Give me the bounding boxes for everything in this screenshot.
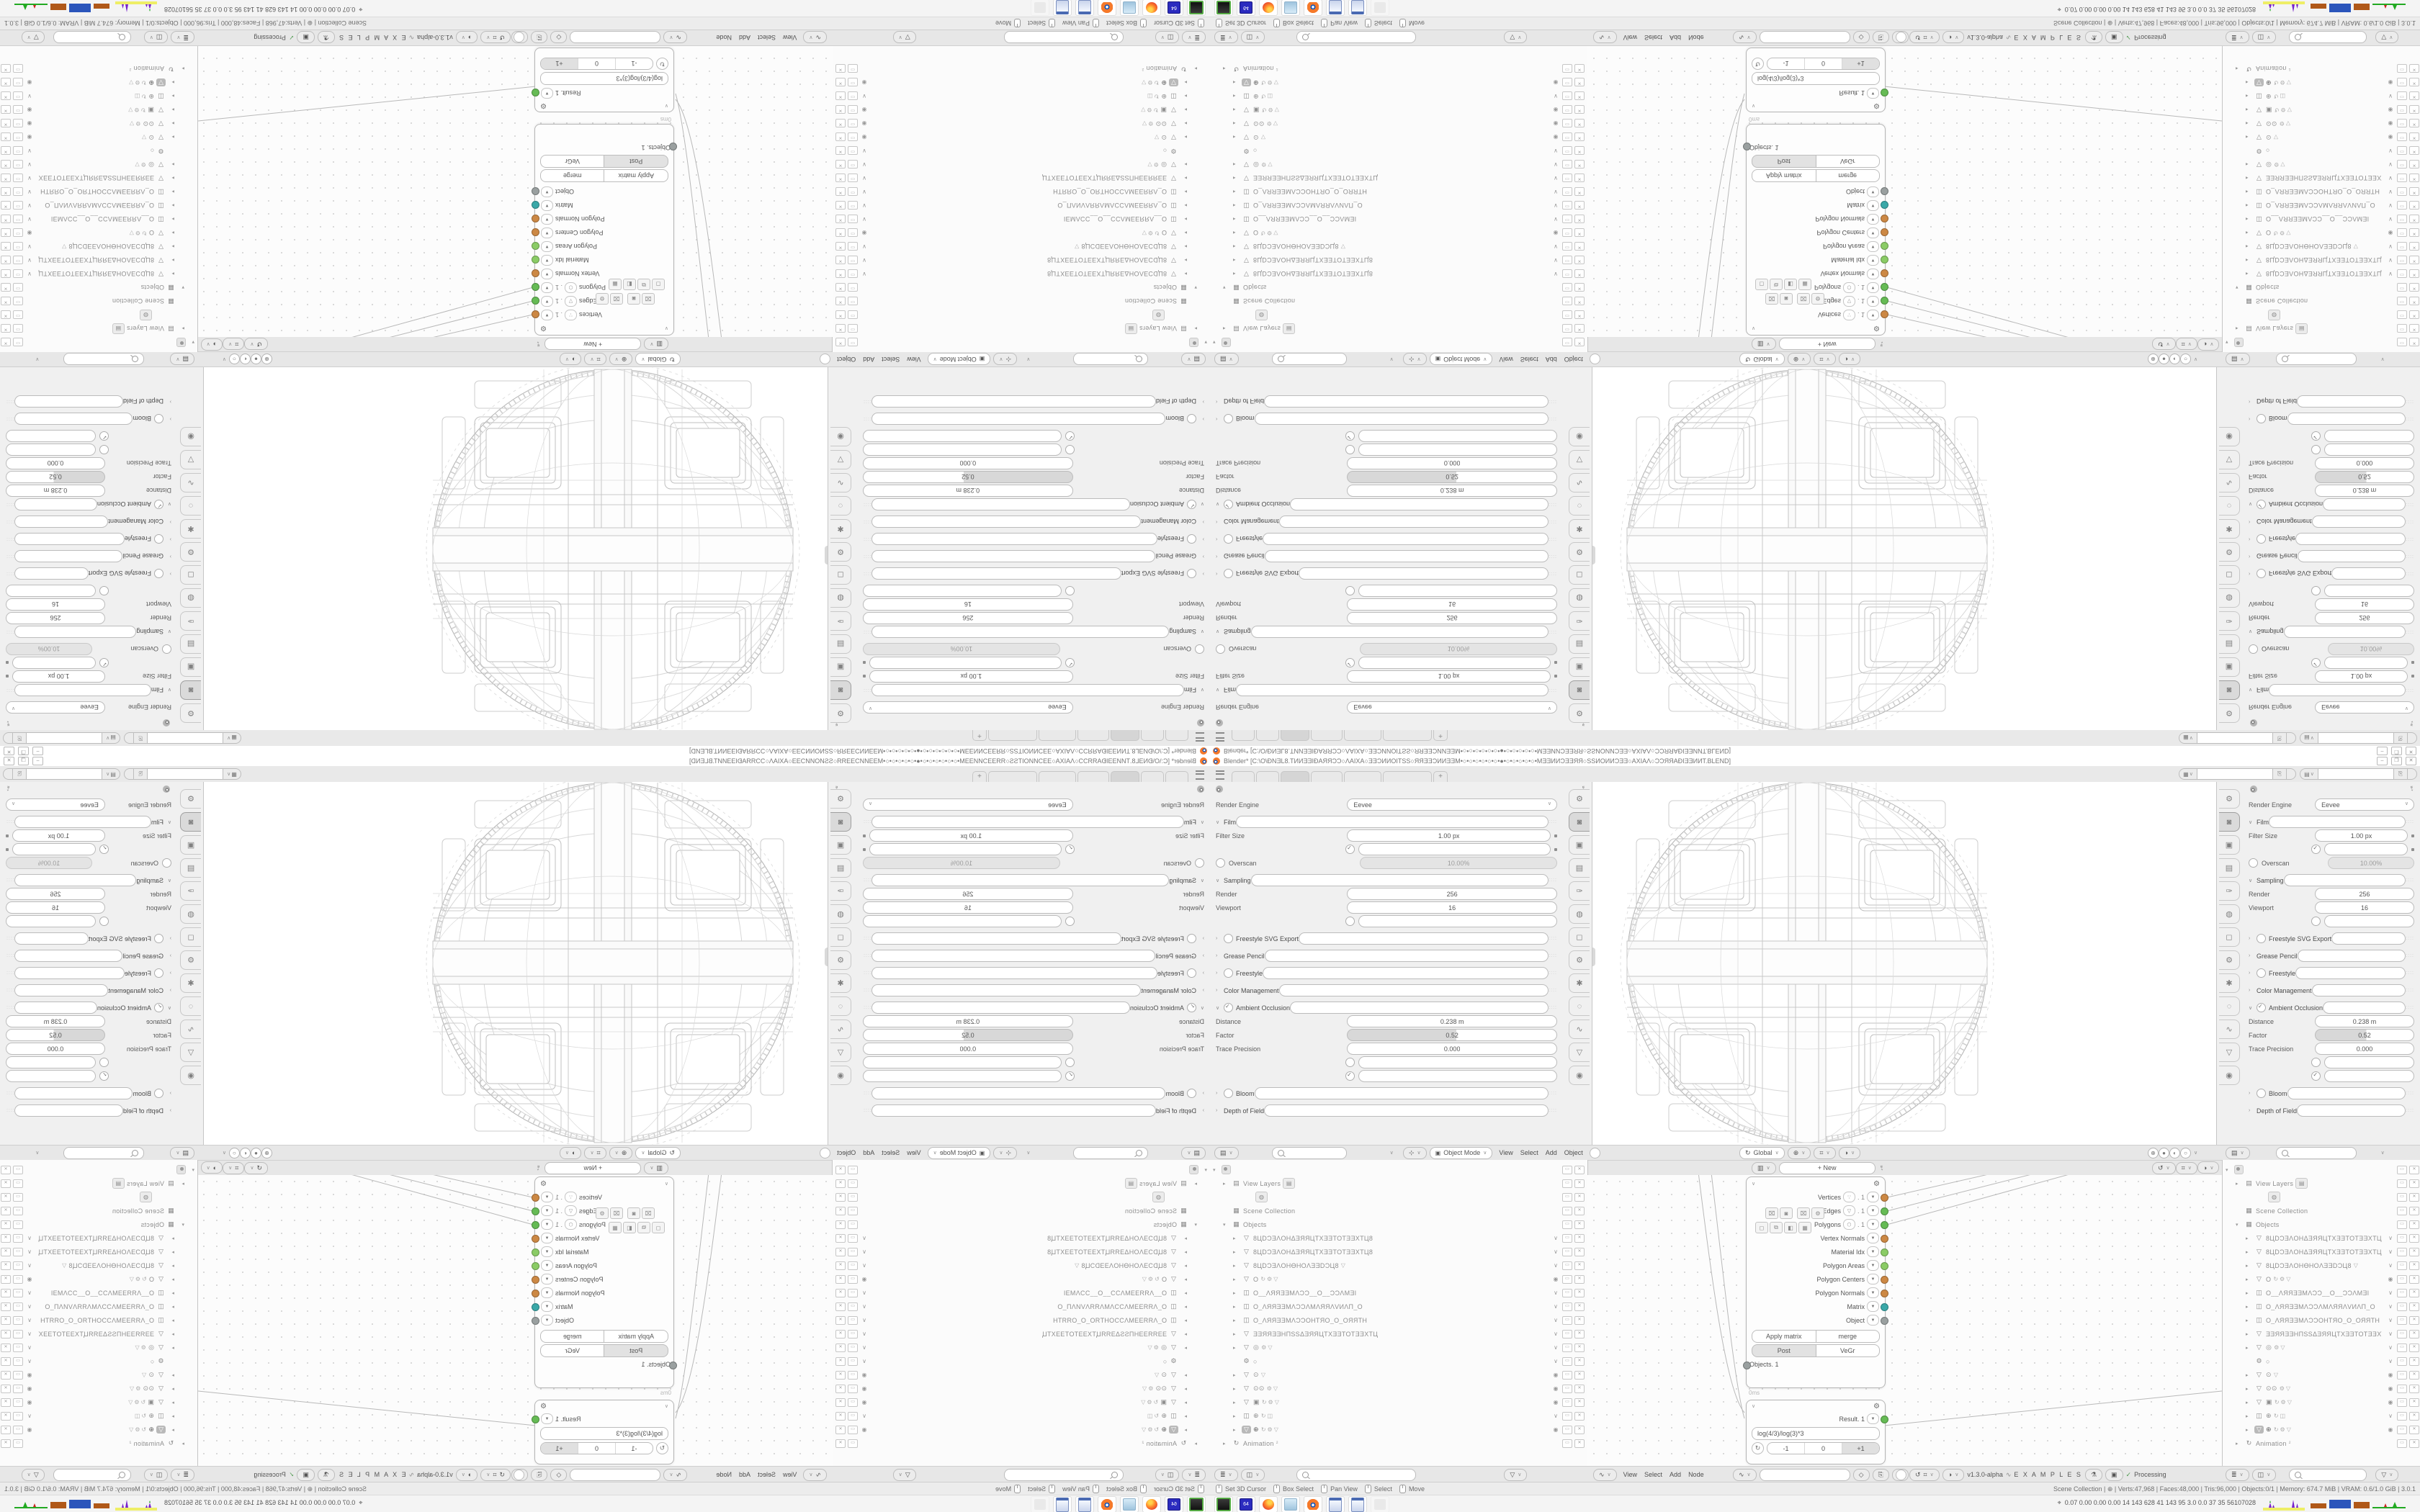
object-name[interactable]: 8ЦDƆƎΛOHƟHOΛƎƎDƆЦ8 <box>2266 243 2352 251</box>
copy-button[interactable]: ⎘ <box>1873 32 1889 44</box>
viewport-visibility-icon[interactable]: ▭ <box>848 1289 858 1297</box>
value-field[interactable]: 256 <box>1347 888 1557 900</box>
render-visibility-icon[interactable]: ✕ <box>1574 1166 1585 1174</box>
object-name[interactable]: Animation <box>1243 66 1274 73</box>
value-field[interactable] <box>871 950 1156 962</box>
viewport-visibility-icon[interactable]: ▭ <box>13 1344 23 1352</box>
properties-row[interactable]: ∨ Sampling Sampling :::: <box>2249 625 2414 639</box>
properties-row[interactable]: Bounces Approximation Bounces Approximat… <box>6 429 171 443</box>
render-visibility-icon[interactable]: ✕ <box>1 1193 11 1202</box>
outliner-display-mode-button[interactable]: ≣∨ <box>1214 32 1238 44</box>
tree-name-field[interactable] <box>1760 32 1850 44</box>
render-visibility-icon[interactable]: ✕ <box>2409 297 2419 306</box>
properties-tab-icon[interactable]: ◻ <box>2219 565 2240 585</box>
drag-dots[interactable]: :::: <box>6 399 14 404</box>
toggle-checkbox[interactable] <box>162 858 171 868</box>
workspace-tab[interactable] <box>988 771 1037 782</box>
toggle-checkbox[interactable] <box>154 569 163 578</box>
properties-row[interactable]: Trace Precision Trace Precision 0.000 ::… <box>6 456 171 470</box>
outliner-row[interactable]: ◍ ▭ ✕ <box>0 1190 194 1204</box>
stepper-button[interactable]: 0 <box>578 1443 616 1454</box>
properties-tab-icon[interactable]: ✱ <box>1569 519 1590 539</box>
socket-dot[interactable] <box>1881 1290 1888 1297</box>
visibility-icon[interactable]: ∨ <box>2386 1413 2395 1419</box>
section-chevron-icon[interactable]: ∨ <box>1196 629 1204 635</box>
outliner-row[interactable]: ▸ ▽ 8ЦDƆƎΛOHΔƎЯЯЦTXƎƎTOTƎƎXTЦ8 ∨ ▭ ✕ <box>0 253 194 267</box>
outliner-row[interactable]: ▸ ▤ View Layers ▤ ▭ ✕ <box>834 1176 1207 1190</box>
socket-dropdown[interactable]: ▼ <box>1867 228 1879 238</box>
object-name[interactable]: O_ΛЯЯƎƎMΛƆƆΛMΛЯЯΛVИΛП_O <box>2266 202 2375 210</box>
viewport-visibility-icon[interactable]: ▭ <box>1562 229 1572 238</box>
outliner-row[interactable]: ▸ ▽ 8ЦDƆƎΛOHΔƎЯЯЦTXƎƎTOTƎƎXTЦ8 ∨ ▭ ✕ <box>834 1231 1207 1245</box>
viewport-visibility-icon[interactable]: ▭ <box>13 174 23 183</box>
properties-row[interactable]: Transparent Transparent :::: <box>2249 842 2414 856</box>
visibility-icon[interactable]: ◉ <box>860 230 869 236</box>
expand-icon[interactable]: ▾ <box>2236 285 2242 291</box>
viewlayer-name-field[interactable] <box>26 768 102 780</box>
viewport-extra-button[interactable] <box>820 354 830 365</box>
visibility-icon[interactable]: ◉ <box>1551 79 1560 86</box>
outliner-display-mode-button[interactable]: ≣∨ <box>2226 1469 2249 1481</box>
outliner-row[interactable]: ▸ ▽ 8ЦDƆƎΛOHƟHOΛƎƎDƆЦ8 ▽ ∨ ▭ ✕ <box>1213 1259 1586 1272</box>
drag-dots[interactable]: :::: <box>863 971 871 976</box>
value-field[interactable]: 0.000 <box>863 457 1073 469</box>
stepper-button[interactable]: +1 <box>541 1443 578 1454</box>
object-name[interactable]: ◎ <box>1161 161 1167 168</box>
render-visibility-icon[interactable]: ✕ <box>1 243 11 251</box>
viewport-visibility-icon[interactable]: ▭ <box>2397 92 2407 101</box>
viewport-visibility-icon[interactable]: ▭ <box>2397 1193 2407 1202</box>
expand-icon[interactable]: ▸ <box>1180 1249 1187 1255</box>
object-name[interactable]: Objects <box>1243 284 1267 292</box>
value-field[interactable]: 1.00 px <box>2315 670 2408 683</box>
section-chevron-icon[interactable]: › <box>1196 416 1204 421</box>
value-field[interactable]: 10.00% <box>6 643 92 655</box>
node-tool-button[interactable]: ⚙ <box>1811 293 1824 305</box>
proportional-dropdown[interactable]: ◑∨ <box>1839 354 1861 366</box>
value-field[interactable]: 0.238 m <box>6 1015 105 1027</box>
value-field[interactable] <box>1236 684 1549 696</box>
node-editor-canvas[interactable]: ∨⚙ Vertices ∵ . 1 ▼ Edges ▽ . 1 ▼ Polygo… <box>1587 1175 2222 1466</box>
value-field[interactable] <box>14 984 109 996</box>
viewport-visibility-icon[interactable]: ▭ <box>2397 1412 2407 1421</box>
object-name[interactable]: O_ΛЯЯƎƎMΛƆƆΛMΛЯЯΛVИΛП_O <box>1253 202 1363 210</box>
viewport-visibility-icon[interactable]: ▭ <box>2397 1385 2407 1393</box>
viewport-visibility-icon[interactable]: ▭ <box>1562 1193 1572 1202</box>
stepper-button[interactable]: +1 <box>541 58 578 69</box>
object-name[interactable]: Scene Collection <box>1243 1207 1295 1215</box>
drag-dots[interactable]: :::: <box>863 953 871 958</box>
object-name[interactable]: ⊕ <box>148 78 154 86</box>
outliner-funnel-button[interactable]: ▽∨ <box>2375 1469 2398 1481</box>
toggle-checkbox[interactable] <box>2311 845 2321 854</box>
socket-chip-icon[interactable]: ⬡ <box>1843 282 1855 293</box>
object-name[interactable]: O__ΛЯЯƎƎMΛƆƆ__O__ƆƆΛMƎI <box>1253 216 1356 223</box>
properties-row[interactable]: › Color Management Color Management Colo… <box>863 515 1204 528</box>
viewport-visibility-icon[interactable]: ▭ <box>1562 1398 1572 1407</box>
visibility-icon[interactable]: ◉ <box>860 107 869 113</box>
drag-dots[interactable]: :::: <box>863 1108 871 1113</box>
drag-dots[interactable]: :::: <box>863 988 871 993</box>
viewport-visibility-icon[interactable]: ▭ <box>1562 174 1572 183</box>
render-visibility-icon[interactable]: ✕ <box>835 284 846 292</box>
viewport-visibility-icon[interactable]: ▭ <box>848 1302 858 1311</box>
properties-row[interactable]: › Freestyle SVG Export Freestyle SVG Exp… <box>1216 932 1557 945</box>
drag-dots[interactable]: :::: <box>863 819 871 824</box>
expand-icon[interactable]: ▸ <box>1180 1236 1187 1241</box>
visibility-icon[interactable]: ◉ <box>860 1385 869 1392</box>
expand-icon[interactable]: ▸ <box>1180 135 1187 140</box>
expand-icon[interactable]: ▸ <box>1223 1441 1229 1446</box>
properties-row[interactable]: Filter Size Filter Size 1.00 px :::: <box>2249 670 2414 683</box>
stepper-button[interactable]: -1 <box>1767 1443 1804 1454</box>
socket-dropdown[interactable]: ▼ <box>1867 310 1879 320</box>
viewport-visibility-icon[interactable]: ▭ <box>13 65 23 73</box>
properties-row[interactable]: › Color Management Color Management :::: <box>6 984 171 997</box>
render-visibility-icon[interactable]: ✕ <box>2409 1234 2419 1243</box>
node-output-socket-row[interactable]: Polygon Centers ▼ <box>1747 1272 1885 1286</box>
object-name[interactable]: Animation <box>133 66 164 73</box>
object-name[interactable]: 8ЦDƆƎΛOHΔƎЯЯЦTXƎƎTOTƎƎXTЦ8 <box>1047 1235 1167 1242</box>
taskbar-app-button[interactable] <box>1304 1496 1322 1512</box>
outliner-row[interactable]: ▸ ▽ ▣ ↻⚙▽ ◉ ▭ ✕ <box>2226 1395 2420 1409</box>
stepper-button[interactable]: 0 <box>1804 1443 1842 1454</box>
value-field[interactable] <box>1358 585 1557 597</box>
properties-row[interactable]: Factor Factor 0.52 Factor :::: <box>863 1028 1204 1042</box>
object-name[interactable]: 8ЦDƆƎΛOHƟHOΛƎƎDƆЦ8 <box>68 243 154 251</box>
render-visibility-icon[interactable]: ✕ <box>1 1330 11 1338</box>
viewlayer-selector[interactable]: ▤∨ ⎘ <box>3 732 120 744</box>
render-visibility-icon[interactable]: ✕ <box>1 188 11 197</box>
expand-icon[interactable]: ▸ <box>1180 1290 1187 1296</box>
render-visibility-icon[interactable]: ✕ <box>1 106 11 114</box>
render-visibility-icon[interactable]: ✕ <box>1574 1193 1585 1202</box>
new-node-tree-button[interactable]: + New <box>544 338 641 351</box>
input-socket-dot[interactable] <box>669 143 677 150</box>
toggle-checkbox[interactable] <box>2257 934 2266 943</box>
socket-dropdown[interactable]: ▼ <box>541 1219 553 1230</box>
socket-dot[interactable] <box>1881 1221 1888 1229</box>
object-name[interactable]: O_ΛЯЯƎƎMΛƆƆOHTЯO_O_OЯЯTH <box>2266 189 2380 196</box>
formula-input[interactable]: log(4/3)/log(3)*3 <box>1752 1427 1880 1440</box>
viewport-visibility-icon[interactable]: ▭ <box>1562 311 1572 320</box>
outliner-row[interactable]: ▸ ▽ ⊙ ▽ ◉ ▭ ✕ <box>2226 130 2420 144</box>
viewlayer-selector[interactable]: ▤∨ ⎘ <box>2300 732 2417 744</box>
properties-row[interactable]: › Color Management Color Management :::: <box>2249 984 2414 997</box>
render-visibility-icon[interactable]: ✕ <box>1574 256 1585 265</box>
viewport-visibility-icon[interactable]: ▭ <box>1562 325 1572 333</box>
render-visibility-icon[interactable]: ✕ <box>835 202 846 210</box>
object-name[interactable]: ƎƎЯЯƎƎHПSSΔƎЯЯЦTXƎƎTOTƎƎXTЦ <box>1253 175 1378 182</box>
object-name[interactable]: ⊙⊙ <box>1253 120 1265 127</box>
socket-dropdown[interactable]: ▼ <box>541 1260 553 1271</box>
viewport-visibility-icon[interactable]: ▭ <box>13 78 23 87</box>
socket-dot[interactable] <box>532 1262 539 1270</box>
node-tool-button[interactable]: ⧉ <box>1770 1222 1783 1233</box>
expand-icon[interactable]: ▸ <box>1233 203 1240 209</box>
object-name[interactable]: O__ΛЯЯƎƎMΛƆƆ__O__ƆƆΛMƎI <box>51 216 154 223</box>
outliner-row[interactable]: ▸ ▽ O ↻⚙▽ ◉ ▭ ✕ <box>834 1272 1207 1286</box>
viewport-visibility-icon[interactable]: ▭ <box>848 270 858 279</box>
expand-icon[interactable]: ▸ <box>1191 66 1197 72</box>
render-visibility-icon[interactable]: ✕ <box>835 188 846 197</box>
node-output-socket-row[interactable]: Polygon Normals ▼ <box>535 212 673 226</box>
drag-dots[interactable]: :::: <box>2406 399 2414 404</box>
object-name[interactable]: 8ЦDƆƎΛOHΔƎЯЯЦTXƎƎTOTƎƎXTЦ8 <box>38 1235 154 1242</box>
stepper-button[interactable]: -1 <box>616 58 653 69</box>
render-visibility-icon[interactable]: ✕ <box>835 1302 846 1311</box>
outliner-row[interactable]: ▸ ↻ Animation ² ▭ ✕ <box>2226 62 2420 76</box>
drag-dots[interactable]: :::: <box>863 1005 871 1010</box>
properties-row[interactable]: Render Engine Render Engine Eevee :::: <box>2249 701 2414 714</box>
outliner-row[interactable]: ▸ ▽ ▣ ↻⚙▽ ◉ ▭ ✕ <box>2226 103 2420 117</box>
transform-gizmo-button[interactable]: ⊹∨ <box>1403 354 1427 366</box>
toggle-checkbox[interactable] <box>1065 845 1075 854</box>
close-button[interactable]: ✕ <box>4 747 14 755</box>
node-tool-button[interactable]: ◻ <box>1755 279 1768 290</box>
taskbar-app-button[interactable] <box>1259 1496 1278 1512</box>
properties-tab-icon[interactable]: ∿ <box>180 1020 201 1039</box>
viewport-visibility-icon[interactable]: ▭ <box>2397 311 2407 320</box>
outliner-row[interactable]: ⚙ ○ ∨ ▭ ✕ <box>0 1354 194 1368</box>
socket-dropdown[interactable]: ▼ <box>541 296 553 307</box>
properties-row[interactable]: Filter Size Filter Size 1.00 px Filter S… <box>863 829 1204 842</box>
object-name[interactable]: 8ЦDƆƎΛOHΔƎЯЯЦTXƎƎTOTƎƎXTЦ8 <box>38 1248 154 1256</box>
properties-tab-icon[interactable]: ◙ <box>830 680 851 700</box>
expand-icon[interactable]: ▸ <box>1233 1372 1240 1378</box>
properties-row[interactable]: Bent Normals Bent Normals Bent Normals :… <box>863 1056 1204 1069</box>
properties-row[interactable]: Overscan Overscan 10.00% Overscan :::: <box>1216 642 1557 656</box>
properties-row[interactable]: › Freestyle Freestyle Freestyle :::: <box>863 966 1204 980</box>
viewport-visibility-icon[interactable]: ▭ <box>1562 202 1572 210</box>
socket-dot[interactable] <box>532 1194 539 1202</box>
expand-icon[interactable]: ▸ <box>168 80 174 86</box>
node-menu-item[interactable]: Add <box>739 34 750 41</box>
viewport-visibility-icon[interactable]: ▭ <box>2397 1357 2407 1366</box>
socket-dot[interactable] <box>1881 201 1888 209</box>
drag-dots[interactable]: :::: <box>2406 936 2414 941</box>
orientation-dropdown[interactable]: ↻Global∨ <box>635 354 681 366</box>
minimize-button[interactable]: – <box>32 747 43 755</box>
outliner-row[interactable]: ▸ ▽ ⊕ ↻⚙▽ ◉ ▭ ✕ <box>834 76 1207 89</box>
value-field[interactable] <box>1290 498 1549 510</box>
outliner-filter-dropdown[interactable]: ∨ <box>1390 1150 1394 1156</box>
viewport-menu-item[interactable]: View <box>1499 1149 1512 1156</box>
value-field[interactable] <box>2324 430 2414 442</box>
properties-row[interactable]: › Freestyle Freestyle :::: <box>6 966 171 980</box>
visibility-icon[interactable]: ∨ <box>2386 257 2395 264</box>
value-field[interactable]: 0.000 <box>2315 457 2414 469</box>
outliner-row[interactable]: ▸ ▽ 8ЦDƆƎΛOHΔƎЯЯЦTXƎƎTOTƎƎXTЦ8 ∨ ▭ ✕ <box>2226 1245 2420 1259</box>
value-field[interactable] <box>2295 533 2406 545</box>
viewport-visibility-icon[interactable]: ▭ <box>13 243 23 251</box>
render-visibility-icon[interactable]: ✕ <box>1 1207 11 1215</box>
render-visibility-icon[interactable]: ✕ <box>2409 1439 2419 1448</box>
expand-icon[interactable]: ▸ <box>2246 176 2252 181</box>
viewport-visibility-icon[interactable]: ▭ <box>13 1179 23 1188</box>
expand-icon[interactable]: ▸ <box>2236 1441 2242 1446</box>
node-tool-button[interactable]: ◧ <box>1784 1222 1797 1233</box>
outliner-row[interactable]: ▸ ◫ O_ΛЯЯƎƎMΛƆƆOHTЯO_O_OЯЯTH ∨ ▭ ✕ <box>1213 1313 1586 1327</box>
refresh-icon[interactable]: ↻ <box>656 1442 668 1454</box>
properties-tab-icon[interactable]: ▤ <box>2219 858 2240 878</box>
outliner-row[interactable]: ▸ ◫ O_ΛЯЯƎƎMΛƆƆΛMΛЯЯΛVИΛП_O ∨ ▭ ✕ <box>1213 1300 1586 1313</box>
properties-tab-icon[interactable]: ▽ <box>2219 450 2240 469</box>
toggle-checkbox[interactable] <box>1187 1003 1196 1012</box>
render-visibility-icon[interactable]: ✕ <box>835 311 846 320</box>
shading-mode-button[interactable]: ○ <box>229 1148 240 1158</box>
properties-row[interactable]: Render Engine Render Engine Eevee Render… <box>1216 798 1557 811</box>
toggle-checkbox[interactable] <box>1345 658 1355 667</box>
workspace-tab[interactable] <box>1344 730 1381 741</box>
examples-menu[interactable]: E X A M P L E S <box>2014 1471 2082 1478</box>
viewport-visibility-icon[interactable]: ▭ <box>848 147 858 156</box>
section-chevron-icon[interactable]: ∨ <box>2249 819 2257 825</box>
outliner-row[interactable]: ⚙ ○ ∨ ▭ ✕ <box>834 1354 1207 1368</box>
node-layout-icon[interactable]: ⚙ <box>540 1180 547 1188</box>
object-name[interactable]: O__ΛЯЯƎƎMΛƆƆ__O__ƆƆΛMƎI <box>51 1290 154 1297</box>
node-output-socket-row[interactable]: Vertices ∵ . 1 ▼ <box>535 1190 673 1204</box>
viewport-visibility-icon[interactable]: ▭ <box>2397 1330 2407 1338</box>
render-visibility-icon[interactable]: ✕ <box>835 297 846 306</box>
render-visibility-icon[interactable]: ✕ <box>1 161 11 169</box>
object-name[interactable]: Objects <box>1153 284 1177 292</box>
properties-row[interactable]: Distance Distance 0.238 m Distance :::: <box>1216 1014 1557 1028</box>
monitor-button[interactable]: ▣ <box>297 1469 315 1481</box>
value-field[interactable]: 0.52 <box>2315 471 2414 483</box>
shading-mode-button[interactable]: ● <box>251 354 261 365</box>
expand-icon[interactable]: ▸ <box>168 1345 174 1351</box>
extra-chip-icon[interactable]: ◍ <box>1152 1192 1165 1202</box>
properties-row[interactable]: Bent Normals Bent Normals Bent Normals :… <box>1216 1056 1557 1069</box>
live-update-toggle[interactable] <box>514 32 524 43</box>
render-visibility-icon[interactable]: ✕ <box>2409 325 2419 333</box>
shading-mode-button[interactable]: ⊕ <box>261 354 272 365</box>
viewport-visibility-icon[interactable]: ▭ <box>848 338 858 347</box>
outliner-row[interactable]: ▸ ▽ ◎ ⚙▽ ∨ ▭ ✕ <box>834 158 1207 171</box>
viewport-visibility-icon[interactable]: ▭ <box>848 1207 858 1215</box>
object-name[interactable]: ⊙⊙ <box>2266 1385 2277 1392</box>
properties-row[interactable]: › Freestyle Freestyle :::: <box>2249 532 2414 546</box>
outliner-search-input[interactable] <box>1004 32 1124 44</box>
area-resize-handle[interactable] <box>825 546 828 564</box>
object-name[interactable]: Animation <box>1146 66 1177 73</box>
render-visibility-icon[interactable]: ✕ <box>1574 1371 1585 1380</box>
expand-icon[interactable]: ▸ <box>1180 107 1187 113</box>
object-name[interactable]: View Layers <box>1139 325 1177 333</box>
render-visibility-icon[interactable]: ✕ <box>1574 1412 1585 1421</box>
object-name[interactable]: ○ <box>150 148 154 155</box>
visibility-icon[interactable]: ∨ <box>25 1331 34 1337</box>
outliner-row[interactable]: ▸ ▽ ⊕ ↻⚙▽ ◉ ▭ ✕ <box>0 76 194 89</box>
value-field[interactable] <box>2324 1070 2414 1082</box>
toggle-checkbox[interactable] <box>1216 644 1225 654</box>
outliner-row[interactable]: ▸ ▽ ƎƎЯЯƎƎHПSSΔƎЯЯЦTXƎƎTOTƎƎXTЦ ∨ ▭ ✕ <box>0 171 194 185</box>
tree-name-field[interactable] <box>570 1469 660 1481</box>
close-button[interactable]: ✕ <box>4 757 14 765</box>
taskbar-app-button[interactable] <box>1142 0 1161 16</box>
node-menu-item[interactable]: View <box>1623 1471 1637 1478</box>
expand-icon[interactable]: ▸ <box>2246 1413 2252 1419</box>
outliner-filter-type-button[interactable]: ▤∨ <box>1214 1147 1239 1159</box>
render-visibility-icon[interactable]: ✕ <box>835 106 846 114</box>
drag-dots[interactable]: :::: <box>6 519 14 524</box>
expand-icon[interactable]: ▸ <box>1233 1249 1240 1255</box>
section-chevron-icon[interactable]: › <box>163 554 171 559</box>
snap-dropdown[interactable]: ⌗∨ <box>1814 354 1835 366</box>
properties-row[interactable]: Bounces Approximation Bounces Approximat… <box>863 429 1204 443</box>
expand-icon[interactable]: ▸ <box>2246 244 2252 250</box>
visibility-icon[interactable]: ∨ <box>860 1344 869 1351</box>
pivot-dropdown[interactable]: ⊕∨ <box>1788 1147 1811 1159</box>
object-name[interactable]: O_ΛЯЯƎƎMΛƆƆOHTЯO_O_OЯЯTH <box>40 1317 154 1324</box>
properties-tab-icon[interactable]: ◌ <box>2219 496 2240 516</box>
expand-icon[interactable]: ▸ <box>2246 271 2252 277</box>
properties-row[interactable]: Factor Factor 0.52 :::: <box>6 1028 171 1042</box>
value-field[interactable] <box>2323 1002 2406 1014</box>
render-visibility-icon[interactable]: ✕ <box>1574 1398 1585 1407</box>
outliner-row[interactable]: ◍ ▭ ✕ <box>2226 308 2420 322</box>
value-field[interactable]: 1.00 px <box>12 829 105 842</box>
viewport-visibility-icon[interactable]: ▭ <box>848 311 858 320</box>
socket-dropdown[interactable]: ▼ <box>541 255 553 266</box>
properties-tab-icon[interactable]: ◌ <box>1569 996 1590 1016</box>
node-menu-item[interactable]: Select <box>758 34 776 41</box>
outliner-filter-type-button[interactable]: ▤∨ <box>2226 1147 2250 1159</box>
properties-tab-icon[interactable]: ⚙ <box>180 789 201 809</box>
value-field[interactable] <box>2298 550 2406 562</box>
animate-dot[interactable] <box>863 848 866 851</box>
properties-row[interactable]: › Depth of Field Depth of Field :::: <box>2249 1104 2414 1117</box>
visibility-icon[interactable]: ◉ <box>25 1276 34 1282</box>
section-chevron-icon[interactable]: › <box>163 936 171 941</box>
apply-matrix-button[interactable]: Apply matrix <box>1752 169 1816 182</box>
value-field[interactable] <box>2331 567 2406 580</box>
toggle-checkbox[interactable] <box>2257 500 2266 509</box>
expand-icon[interactable]: ▸ <box>168 1304 174 1310</box>
viewport-visibility-icon[interactable]: ▭ <box>2397 65 2407 73</box>
outliner-row[interactable]: ▸ ▽ O ↻⚙▽ ◉ ▭ ✕ <box>2226 226 2420 240</box>
value-field[interactable] <box>871 1087 1166 1099</box>
properties-row[interactable]: › Depth of Field Depth of Field Depth of… <box>863 395 1204 408</box>
render-visibility-icon[interactable]: ✕ <box>2409 188 2419 197</box>
viewport-visibility-icon[interactable]: ▭ <box>2397 161 2407 169</box>
outliner-funnel-button[interactable]: ▽∨ <box>22 32 45 44</box>
render-visibility-icon[interactable]: ✕ <box>1574 1248 1585 1256</box>
expand-icon[interactable]: ▸ <box>2236 1181 2242 1187</box>
input-socket-dot[interactable] <box>1743 143 1751 150</box>
properties-row[interactable]: › Freestyle SVG Export Freestyle SVG Exp… <box>6 567 171 580</box>
section-chevron-icon[interactable]: › <box>2249 971 2257 976</box>
scene-selector[interactable]: ▦∨ ⎘ <box>2179 732 2296 744</box>
render-visibility-icon[interactable]: ✕ <box>835 1316 846 1325</box>
scene-copy-button[interactable]: ⎘ <box>133 768 147 780</box>
outliner-row[interactable]: ▸ ▽ ⊙ ▽ ◉ ▭ ✕ <box>1213 130 1586 144</box>
drag-dots[interactable]: :::: <box>2406 988 2414 993</box>
visibility-icon[interactable]: ◉ <box>2386 1276 2395 1282</box>
visibility-icon[interactable]: ◉ <box>1551 1399 1560 1405</box>
extra-chip-icon[interactable]: ◍ <box>2268 1192 2280 1202</box>
expand-icon[interactable]: ▸ <box>1233 271 1240 277</box>
render-visibility-icon[interactable]: ✕ <box>835 1426 846 1434</box>
properties-row[interactable]: Render Engine Render Engine Eevee :::: <box>6 798 171 811</box>
render-visibility-icon[interactable]: ✕ <box>1 65 11 73</box>
section-chevron-icon[interactable]: › <box>1216 1091 1224 1096</box>
render-visibility-icon[interactable]: ✕ <box>835 1207 846 1215</box>
expand-icon[interactable]: ▾ <box>2226 340 2232 346</box>
viewport-visibility-icon[interactable]: ▭ <box>1562 1385 1572 1393</box>
outliner-row[interactable]: ▸ ▤ View Layers ▤ ▭ ✕ <box>2226 1176 2420 1190</box>
